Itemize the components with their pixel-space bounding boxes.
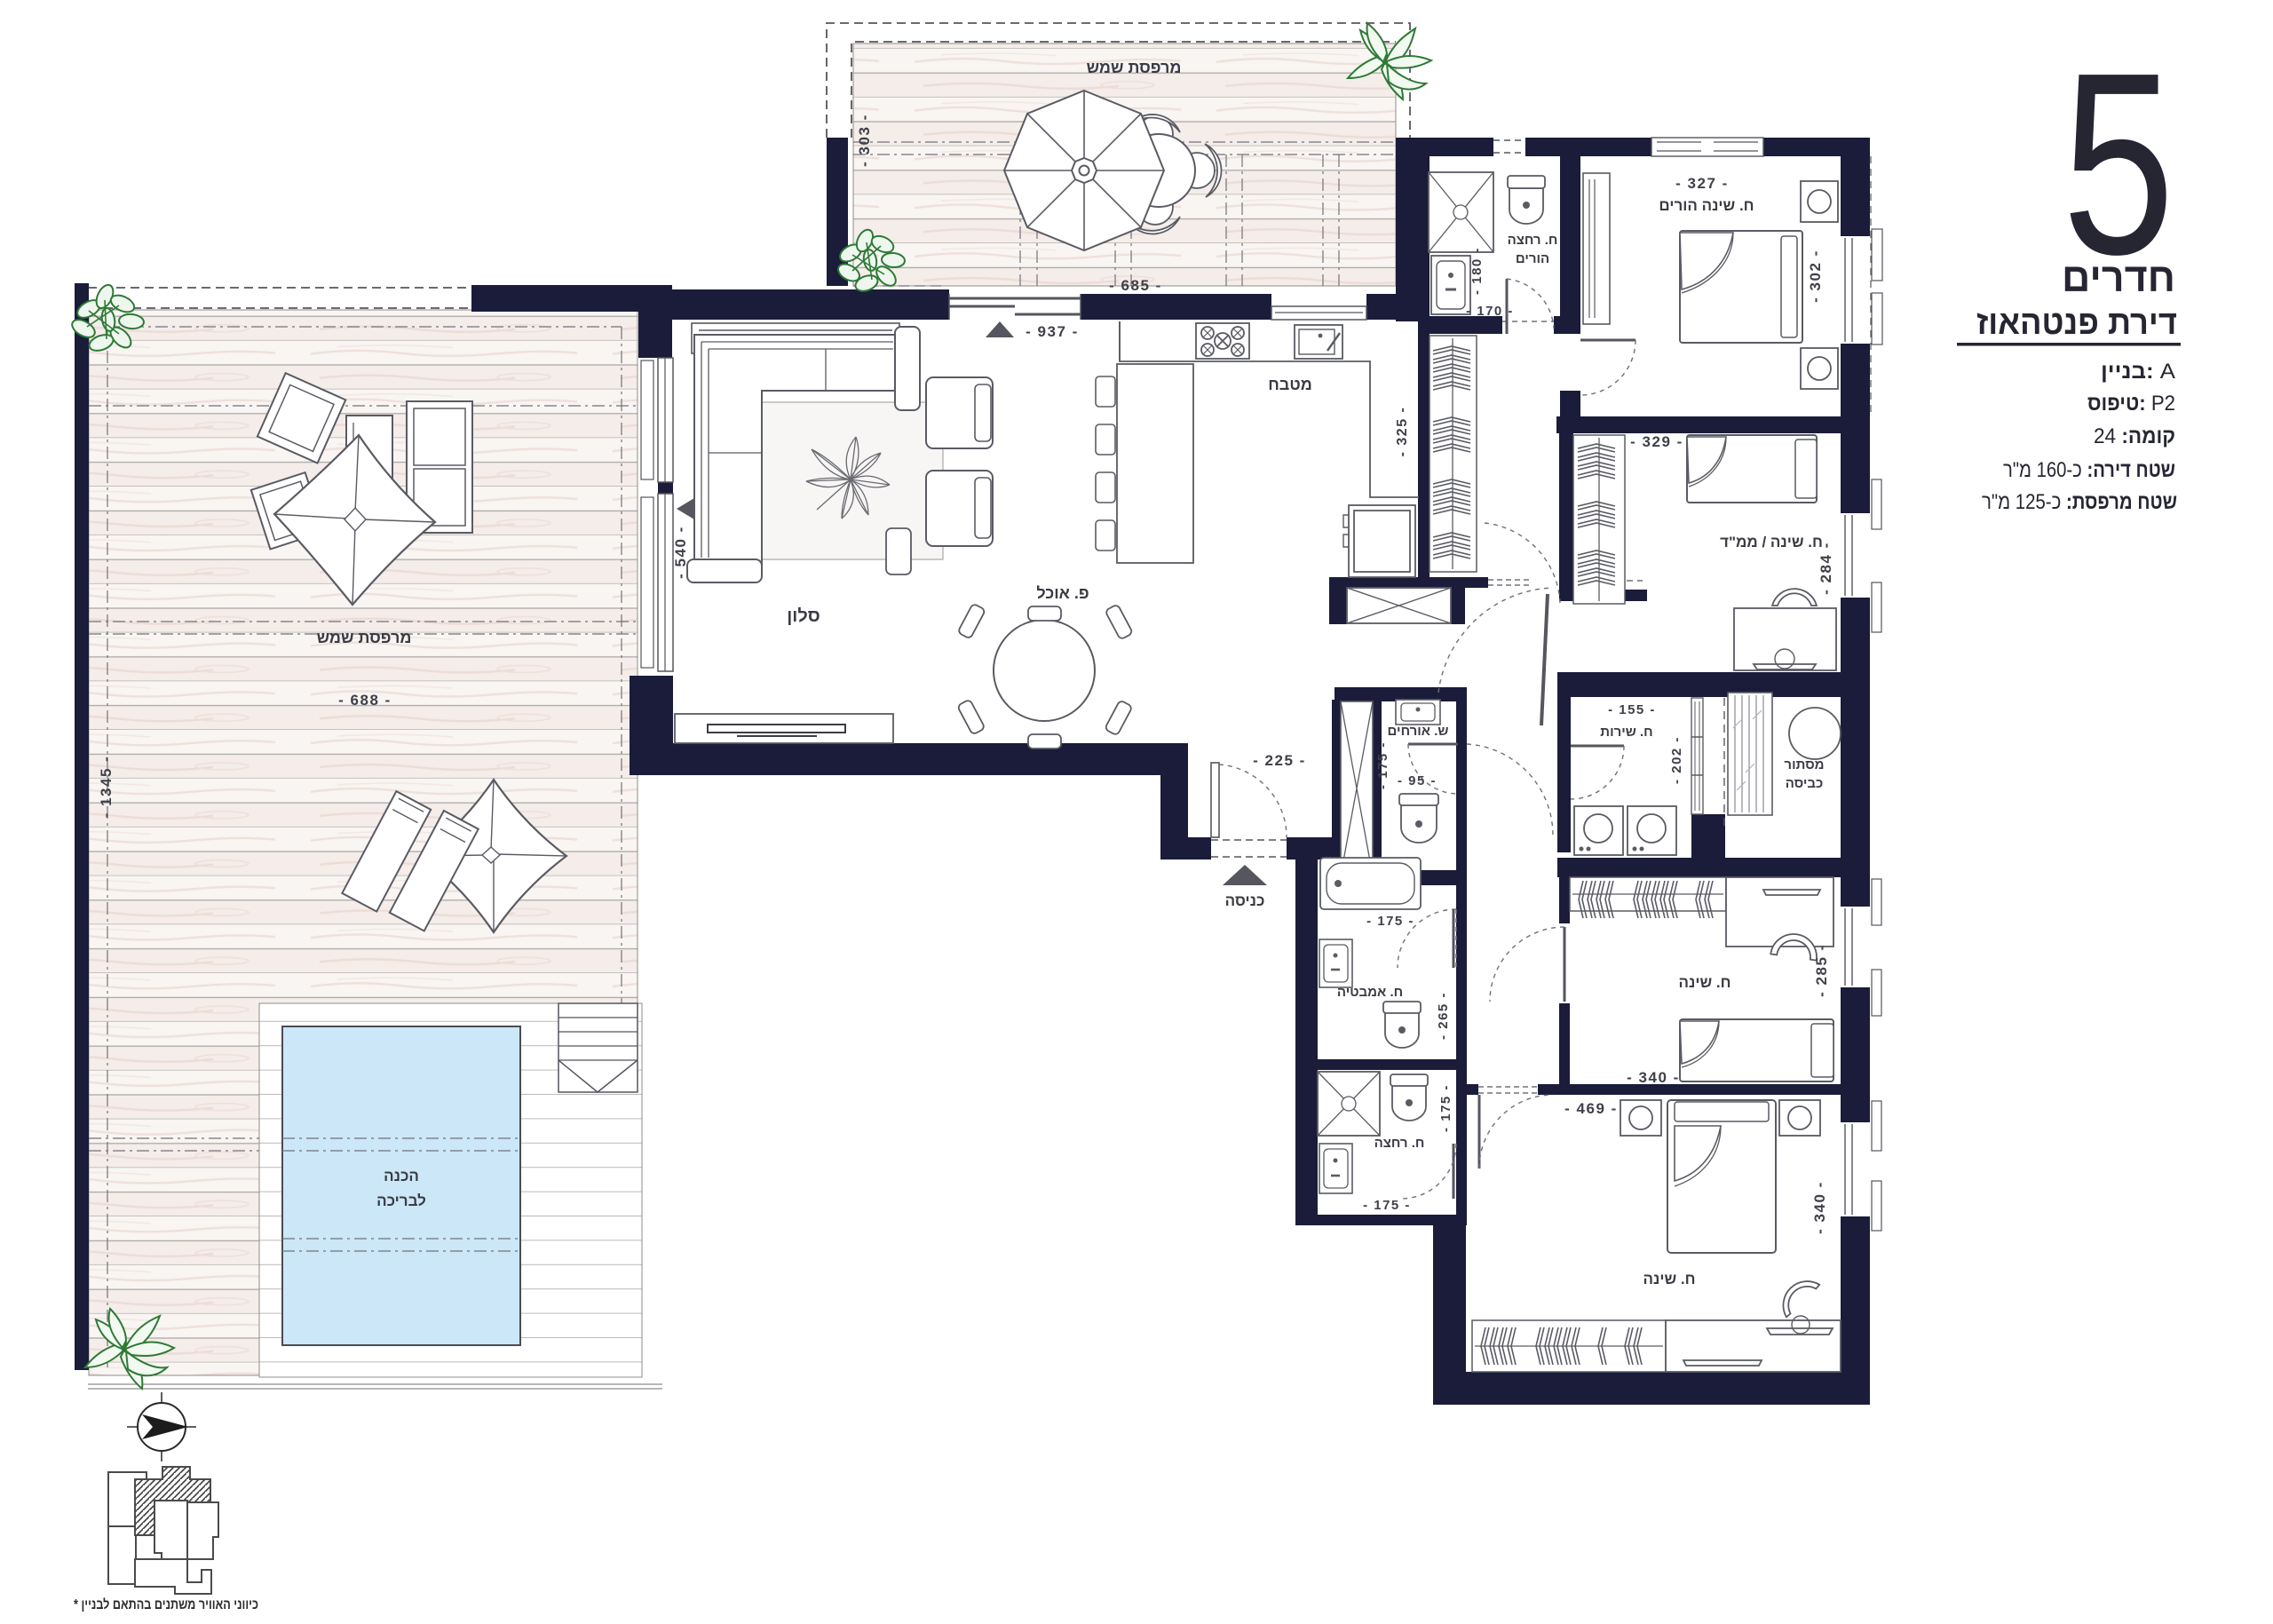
svg-text:- 285 -: - 285 - [1813, 944, 1830, 997]
svg-text:ח. שירות: ח. שירות [1600, 725, 1652, 740]
svg-text:ח. רחצה: ח. רחצה [1374, 1136, 1425, 1151]
svg-text:שטח מרפסת: כ-125 מ"ר: שטח מרפסת: כ-125 מ"ר [1982, 490, 2177, 514]
svg-text:- 284 -: - 284 - [1818, 542, 1834, 595]
svg-text:- 540 -: - 540 - [672, 526, 689, 579]
svg-text:- 170 -: - 170 - [1466, 304, 1514, 319]
svg-text:- 327 -: - 327 - [1675, 175, 1729, 192]
svg-text:מרפסת שמש: מרפסת שמש [317, 629, 412, 646]
svg-text:ח. שינה הורים: ח. שינה הורים [1659, 197, 1754, 214]
svg-text:- 175 -: - 175 - [1438, 1084, 1453, 1132]
svg-text:פ. אוכל: פ. אוכל [1036, 584, 1089, 602]
svg-text:- 302 -: - 302 - [1807, 250, 1824, 303]
svg-text:- 340 -: - 340 - [1627, 1069, 1680, 1086]
svg-text:הכנה: הכנה [384, 1168, 419, 1184]
svg-text:ח. שינה: ח. שינה [1679, 974, 1731, 991]
svg-text:- 1345 -: - 1345 - [98, 756, 115, 819]
svg-text:- 265 -: - 265 - [1436, 992, 1451, 1040]
svg-text:- 175 -: - 175 - [1363, 1198, 1411, 1213]
svg-text:כביסה: כביסה [1786, 776, 1824, 791]
svg-text:בניין: A: בניין: A [2101, 360, 2175, 384]
svg-text:- 303 -: - 303 - [856, 114, 873, 167]
svg-text:- 202 -: - 202 - [1669, 736, 1684, 784]
svg-text:- 95 -: - 95 - [1398, 773, 1437, 788]
svg-text:מסתור: מסתור [1784, 757, 1824, 772]
svg-text:ח. רחצה: ח. רחצה [1508, 233, 1558, 248]
svg-text:- 175 -: - 175 - [1375, 741, 1390, 789]
svg-text:- 225 -: - 225 - [1253, 752, 1306, 769]
svg-text:- 175 -: - 175 - [1366, 914, 1414, 929]
svg-text:חדרים: חדרים [2062, 255, 2175, 300]
svg-text:- 340 -: - 340 - [1811, 1181, 1828, 1234]
svg-text:טיפוס: P2: טיפוס: P2 [2087, 392, 2175, 416]
svg-text:- 155 -: - 155 - [1608, 702, 1656, 717]
svg-text:שטח דירה: כ-160 מ"ר: שטח דירה: כ-160 מ"ר [2003, 458, 2175, 482]
svg-text:- 688 -: - 688 - [338, 692, 392, 709]
svg-text:סלון: סלון [787, 606, 820, 626]
svg-text:מטבח: מטבח [1268, 376, 1312, 393]
svg-text:דירת פנטהאוז: דירת פנטהאוז [1976, 305, 2177, 342]
svg-text:* כיווני האוויר משתנים בהתאם ל: * כיווני האוויר משתנים בהתאם לבניין [74, 1597, 258, 1612]
svg-text:- 180 -: - 180 - [1469, 247, 1485, 295]
svg-text:הורים: הורים [1516, 251, 1549, 266]
svg-text:- 937 -: - 937 - [1026, 323, 1079, 340]
svg-text:ש. אורחים: ש. אורחים [1388, 724, 1449, 739]
svg-text:כניסה: כניסה [1225, 892, 1265, 909]
svg-text:לבריכה: לבריכה [376, 1192, 426, 1209]
svg-text:- 325 -: - 325 - [1395, 407, 1410, 457]
svg-text:קומה: 24: קומה: 24 [2094, 424, 2175, 448]
svg-text:- 469 -: - 469 - [1564, 1100, 1618, 1117]
svg-text:- 329 -: - 329 - [1630, 433, 1683, 450]
svg-text:ח. אמבטיה: ח. אמבטיה [1337, 985, 1403, 1000]
svg-text:ח. שינה / ממ"ד: ח. שינה / ממ"ד [1720, 534, 1823, 551]
svg-text:מרפסת שמש: מרפסת שמש [1087, 59, 1182, 76]
svg-text:- 685 -: - 685 - [1109, 277, 1162, 294]
svg-text:ח. שינה: ח. שינה [1643, 1271, 1696, 1287]
